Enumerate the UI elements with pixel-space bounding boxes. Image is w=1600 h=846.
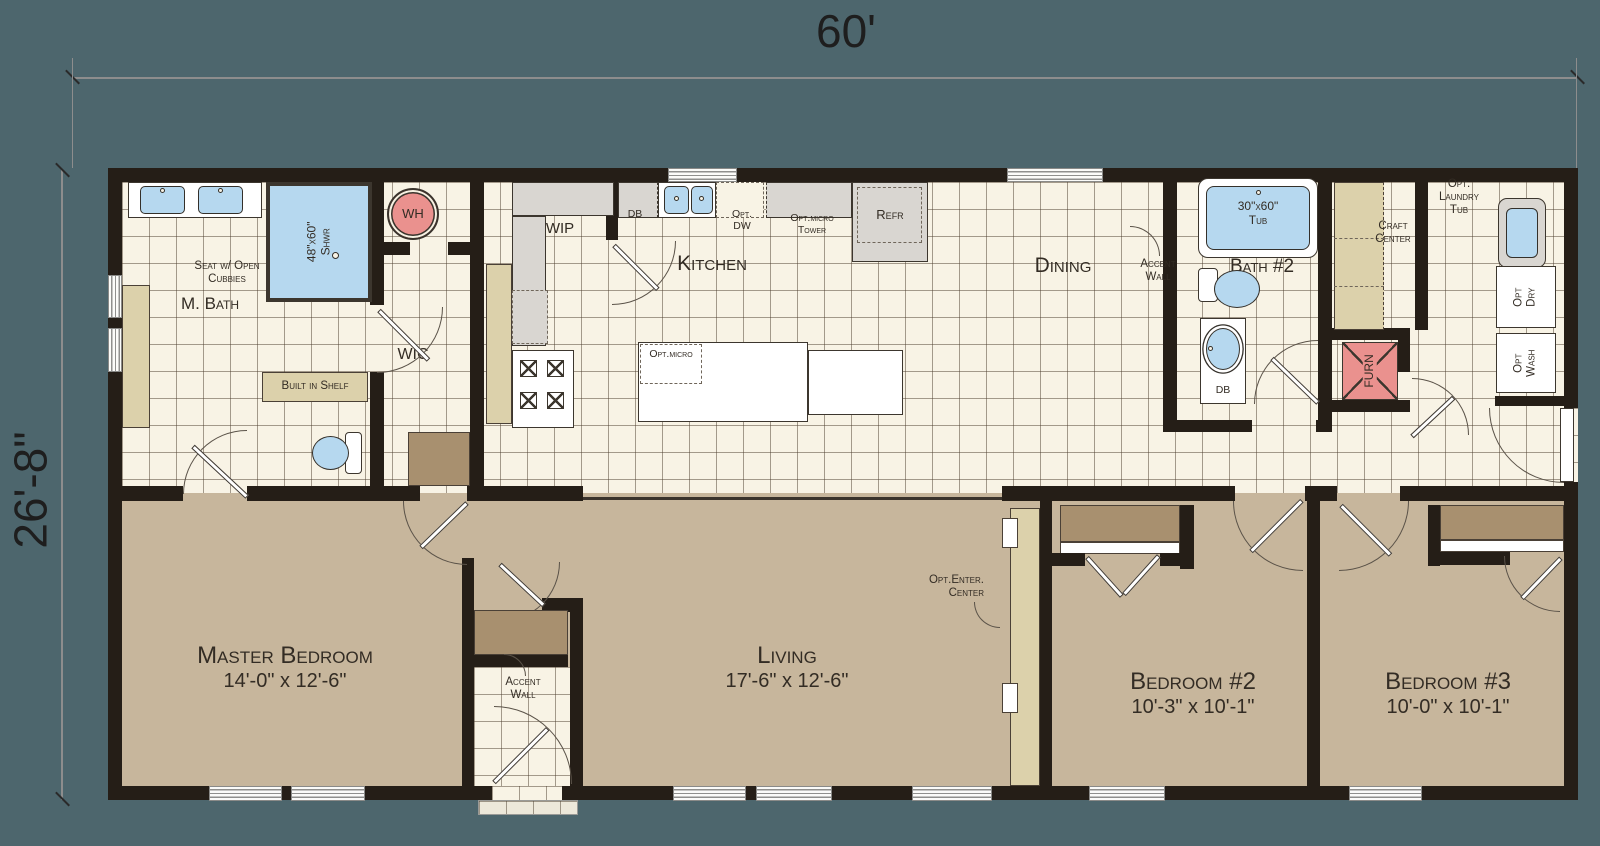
wall (1307, 501, 1320, 786)
window (673, 786, 746, 801)
laundry-tub-label: Opt. Laundry Tub (1424, 178, 1494, 218)
refrigerator-label: Refr (852, 208, 928, 223)
top-dimension-line (72, 77, 1577, 79)
wall (370, 372, 384, 493)
bedroom3-closet (1440, 505, 1564, 540)
wic-closet-floor (408, 432, 470, 486)
db-label: DB (1200, 384, 1246, 396)
accent-wall-label: Accent Wall (486, 676, 560, 702)
room-label-kitchen: Kitchen (612, 252, 812, 276)
room-label-wip: WIP (528, 220, 592, 237)
faucet (160, 188, 165, 193)
window (108, 275, 122, 318)
entertainment-niche (1002, 518, 1018, 548)
wall (1177, 420, 1252, 432)
opt-dryer: Opt Dry (1496, 266, 1556, 328)
wall (1398, 340, 1410, 372)
wall (1332, 400, 1410, 412)
room-label-dining: Dining (983, 254, 1143, 278)
pantry-counter (512, 182, 614, 216)
wall (467, 486, 583, 501)
shower-label: 48"x60" Shwr (305, 222, 333, 263)
dimension-tick (55, 792, 70, 807)
room-label-bedroom2: Bedroom #2 10'-3" x 10'-1" (1093, 668, 1293, 719)
kitchen-island (808, 350, 903, 415)
burner (520, 392, 537, 409)
opt-enter-center-label: Opt.Enter. Center (908, 574, 984, 600)
wall (448, 242, 470, 255)
door-exterior-right (1560, 408, 1574, 482)
wall (1052, 553, 1085, 566)
wall (1163, 182, 1177, 432)
window (108, 328, 122, 372)
wall (122, 486, 183, 501)
opt-cabinet (512, 290, 548, 344)
opt-entertainment-center (1010, 508, 1040, 786)
window (668, 168, 737, 182)
burner (547, 392, 564, 409)
wall (470, 182, 484, 493)
floor-plan: 48"x60" Shwr WH Seat w/ Open Cubbies M. … (108, 168, 1578, 800)
room-label-living: Living 17'-6" x 12'-6" (687, 642, 887, 693)
faucet (1208, 346, 1213, 351)
closet-shelf (1440, 540, 1564, 552)
extension-line (72, 58, 73, 168)
wall (247, 486, 420, 501)
height-dimension: 26'-8" (0, 400, 62, 580)
window (291, 786, 365, 801)
wall (462, 558, 474, 786)
left-dimension-line (61, 170, 63, 800)
room-label-master-bedroom: Master Bedroom 14'-0" x 12'-6" (185, 642, 385, 693)
faucet (218, 188, 223, 193)
built-in-shelf: Built in Shelf (262, 372, 368, 402)
width-dimension: 60' (746, 4, 946, 58)
db-label: DB (613, 208, 657, 220)
opt-micro-tower-label: Opt.micro Tower (772, 212, 852, 236)
opt-dw-label: Opt. DW (718, 208, 766, 232)
wall (1495, 396, 1564, 406)
water-heater: WH (387, 188, 439, 240)
room-label-bedroom3: Bedroom #3 10'-0" x 10'-1" (1348, 668, 1548, 719)
wall (1318, 182, 1332, 432)
wall (1040, 501, 1052, 786)
wall (1400, 486, 1564, 501)
entertainment-niche (1002, 683, 1018, 713)
floor-transition (583, 497, 1002, 500)
wall (1002, 486, 1235, 501)
wall (384, 242, 410, 255)
wall (1160, 553, 1194, 566)
faucet (699, 196, 704, 201)
wall (570, 612, 583, 786)
room-label-master-bath: M. Bath (140, 294, 280, 314)
cabinet-line (1334, 286, 1384, 287)
shower-drain (332, 252, 339, 259)
wall (1305, 486, 1337, 501)
wic-shelf (486, 264, 512, 424)
opt-washer: Opt Wash (1496, 333, 1556, 393)
burner (547, 360, 564, 377)
craft-center-cabinet (1334, 182, 1384, 330)
extension-line (1576, 58, 1577, 168)
window (209, 786, 282, 801)
toilet-bowl (312, 436, 349, 470)
wall (1428, 505, 1440, 566)
tub-label: 30"x60" Tub (1206, 200, 1310, 228)
laundry-tub-basin (1506, 208, 1538, 258)
window (1007, 168, 1103, 182)
furnace: FURN (1342, 342, 1398, 400)
bedroom2-closet (1060, 505, 1180, 542)
faucet (674, 196, 679, 201)
window (912, 786, 992, 801)
window (1089, 786, 1165, 801)
accent-wall-label: Accent Wall (1127, 258, 1189, 284)
wall (370, 182, 384, 305)
window (756, 786, 832, 801)
faucet (1256, 190, 1261, 195)
opt-micro-label: Opt.micro (640, 348, 702, 360)
wall (1440, 552, 1510, 565)
craft-center-label: Craft Center (1364, 220, 1422, 246)
door-opening-floor (492, 786, 562, 800)
window (1349, 786, 1422, 801)
entry-closet (474, 610, 568, 655)
porch-step (478, 800, 578, 815)
burner (520, 360, 537, 377)
floor-plan-canvas: 60' 26'-8" (0, 0, 1600, 846)
toilet-bowl (1214, 270, 1260, 308)
seat-cubbies-label: Seat w/ Open Cubbies (148, 260, 306, 286)
dimension-tick (55, 163, 70, 178)
